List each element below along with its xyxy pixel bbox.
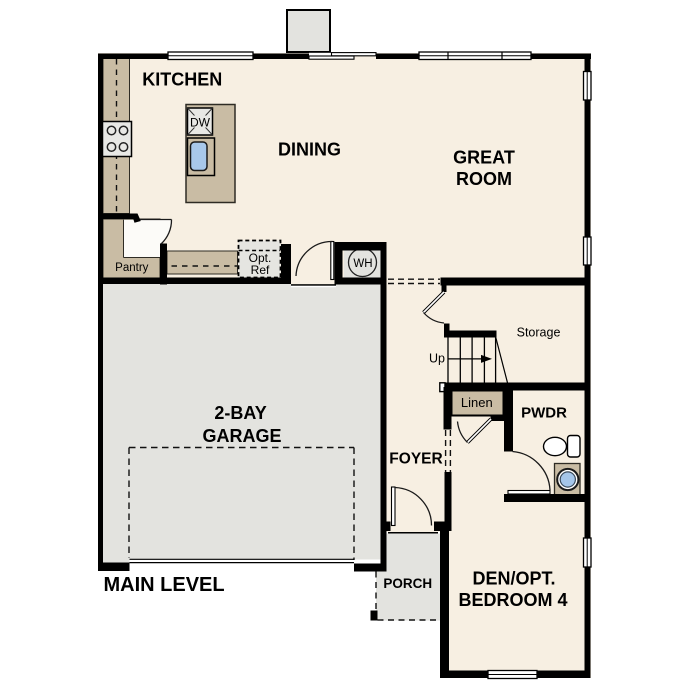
svg-text:DW: DW bbox=[190, 116, 211, 130]
svg-text:2-BAY: 2-BAY bbox=[214, 403, 266, 423]
svg-text:GARAGE: GARAGE bbox=[202, 426, 281, 446]
svg-text:MAIN LEVEL: MAIN LEVEL bbox=[104, 574, 225, 596]
svg-text:Linen: Linen bbox=[461, 395, 493, 410]
svg-text:BEDROOM 4: BEDROOM 4 bbox=[458, 590, 567, 610]
svg-text:DINING: DINING bbox=[278, 139, 341, 159]
svg-text:GREAT: GREAT bbox=[453, 148, 515, 168]
svg-text:Up: Up bbox=[429, 352, 445, 366]
svg-text:PORCH: PORCH bbox=[383, 576, 432, 591]
svg-text:Storage: Storage bbox=[517, 326, 561, 340]
svg-text:DEN/OPT.: DEN/OPT. bbox=[472, 569, 555, 589]
svg-text:ROOM: ROOM bbox=[456, 169, 512, 189]
svg-text:Ref: Ref bbox=[251, 263, 270, 277]
svg-text:WH: WH bbox=[353, 258, 372, 270]
svg-text:KITCHEN: KITCHEN bbox=[142, 69, 222, 89]
svg-text:FOYER: FOYER bbox=[389, 451, 442, 468]
svg-text:PWDR: PWDR bbox=[521, 405, 567, 422]
svg-text:Pantry: Pantry bbox=[115, 262, 148, 274]
